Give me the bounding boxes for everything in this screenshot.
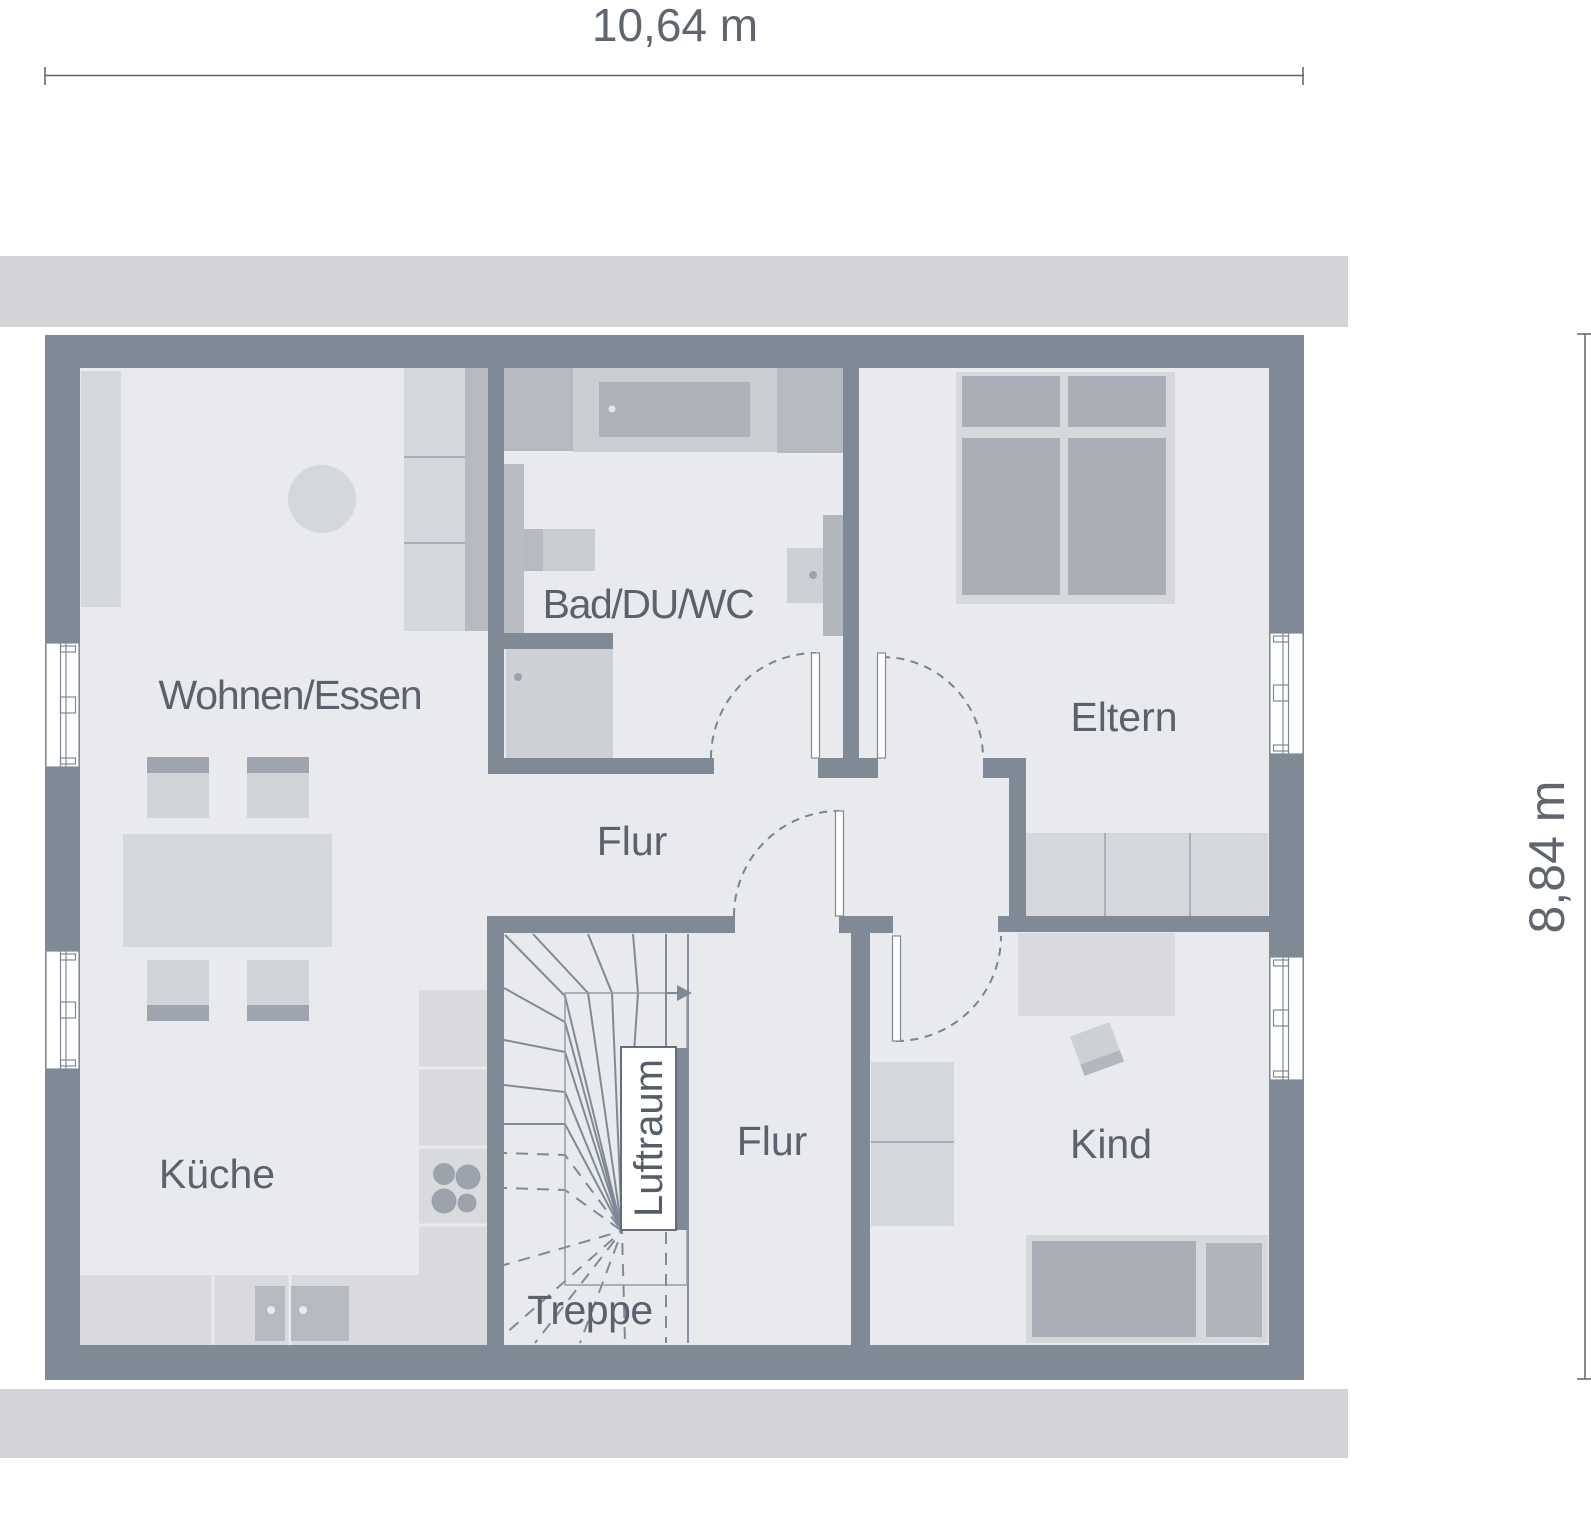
svg-text:10,64 m: 10,64 m [592,0,758,51]
svg-text:Küche: Küche [159,1151,275,1197]
svg-text:8,84 m: 8,84 m [1519,781,1575,934]
svg-text:Bad/DU/WC: Bad/DU/WC [543,581,754,627]
svg-text:Flur: Flur [597,818,668,864]
svg-text:Eltern: Eltern [1070,694,1177,740]
svg-text:Treppe: Treppe [527,1287,652,1333]
svg-text:Flur: Flur [737,1118,808,1164]
svg-text:Wohnen/Essen: Wohnen/Essen [159,672,422,718]
svg-text:Luftraum: Luftraum [627,1059,671,1217]
svg-text:Kind: Kind [1070,1121,1152,1167]
